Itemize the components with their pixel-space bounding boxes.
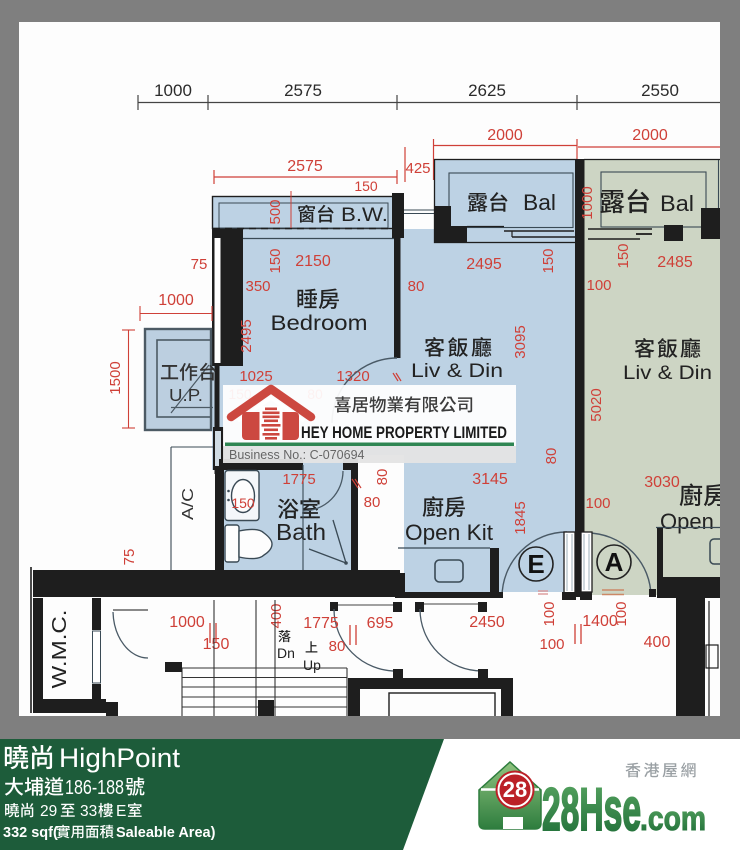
svg-text:150: 150 xyxy=(267,248,284,273)
svg-text:100: 100 xyxy=(613,601,630,626)
svg-text:3145: 3145 xyxy=(472,471,508,488)
svg-text:1775: 1775 xyxy=(282,471,315,488)
svg-text:332 sqf(: 332 sqf( xyxy=(3,825,58,841)
svg-text:100: 100 xyxy=(541,601,558,626)
svg-text:.com: .com xyxy=(640,800,706,838)
svg-text:100: 100 xyxy=(585,495,610,512)
svg-text:1320: 1320 xyxy=(336,368,369,385)
svg-text:1845: 1845 xyxy=(512,501,529,534)
svg-text:2000: 2000 xyxy=(487,127,523,144)
svg-text:695: 695 xyxy=(367,615,394,632)
svg-text:Bal: Bal xyxy=(660,191,694,216)
svg-text:186-188: 186-188 xyxy=(65,777,124,799)
svg-text:28Hse: 28Hse xyxy=(542,776,641,843)
svg-text:1000: 1000 xyxy=(169,614,205,631)
svg-text:75: 75 xyxy=(191,256,208,273)
svg-text:Liv & Din: Liv & Din xyxy=(623,363,712,384)
svg-text:B.W.: B.W. xyxy=(341,205,388,226)
svg-text:1500: 1500 xyxy=(107,361,124,394)
svg-text:3095: 3095 xyxy=(512,325,529,358)
svg-text:28: 28 xyxy=(503,777,527,802)
svg-text:E: E xyxy=(527,549,544,579)
svg-text:2450: 2450 xyxy=(469,614,505,631)
svg-text:Dn: Dn xyxy=(277,645,295,661)
svg-text:150: 150 xyxy=(540,248,557,273)
svg-text:2575: 2575 xyxy=(287,158,323,175)
svg-text:80: 80 xyxy=(329,638,346,655)
svg-text:Open Kit: Open Kit xyxy=(405,520,493,545)
svg-text:HEY HOME PROPERTY LIMITED: HEY HOME PROPERTY LIMITED xyxy=(301,424,507,442)
svg-text:100: 100 xyxy=(586,277,611,294)
svg-text:Liv & Din: Liv & Din xyxy=(411,361,503,382)
svg-text:80: 80 xyxy=(374,469,391,486)
svg-text:75: 75 xyxy=(121,549,138,566)
svg-text:425: 425 xyxy=(405,160,430,177)
svg-text:400: 400 xyxy=(268,603,285,628)
svg-text:80: 80 xyxy=(364,494,381,511)
svg-text:33: 33 xyxy=(80,803,97,820)
svg-text:Saleable Area): Saleable Area) xyxy=(116,825,216,841)
svg-text:1025: 1025 xyxy=(239,368,272,385)
svg-text:Business No.: C-070694: Business No.: C-070694 xyxy=(229,448,365,462)
svg-text:1775: 1775 xyxy=(303,615,339,632)
svg-text:400: 400 xyxy=(644,634,671,651)
svg-text:U.P.: U.P. xyxy=(169,385,203,405)
svg-text:100: 100 xyxy=(539,636,564,653)
svg-text:2485: 2485 xyxy=(657,254,693,271)
svg-text:150: 150 xyxy=(354,178,378,194)
svg-text:E: E xyxy=(116,803,126,820)
svg-text:150: 150 xyxy=(615,243,632,268)
svg-text:80: 80 xyxy=(408,278,425,295)
svg-text:500: 500 xyxy=(267,199,284,224)
svg-text:2495: 2495 xyxy=(238,319,255,352)
svg-text:Up: Up xyxy=(303,657,321,673)
svg-text:5020: 5020 xyxy=(588,388,605,421)
svg-text:2000: 2000 xyxy=(632,127,668,144)
svg-text:2150: 2150 xyxy=(295,253,331,270)
svg-text:2495: 2495 xyxy=(466,256,502,273)
svg-text:3030: 3030 xyxy=(644,474,680,491)
svg-text:29: 29 xyxy=(40,803,57,820)
svg-text:W.M.C.: W.M.C. xyxy=(49,610,71,689)
svg-text:A/C: A/C xyxy=(180,488,197,520)
svg-text:350: 350 xyxy=(245,278,270,295)
svg-text:1000: 1000 xyxy=(579,186,596,219)
svg-text:2625: 2625 xyxy=(468,81,506,100)
svg-text:2550: 2550 xyxy=(641,81,679,100)
svg-text:Bath: Bath xyxy=(276,519,326,545)
svg-text:A: A xyxy=(605,547,624,577)
svg-text:150: 150 xyxy=(231,495,255,511)
svg-text:1000: 1000 xyxy=(158,292,194,309)
svg-text:HighPoint: HighPoint xyxy=(59,743,181,773)
svg-text:80: 80 xyxy=(543,448,560,465)
svg-text:1000: 1000 xyxy=(154,81,192,100)
svg-text:Bedroom: Bedroom xyxy=(271,312,368,335)
svg-text:2575: 2575 xyxy=(284,81,322,100)
svg-text:Bal: Bal xyxy=(523,190,556,215)
